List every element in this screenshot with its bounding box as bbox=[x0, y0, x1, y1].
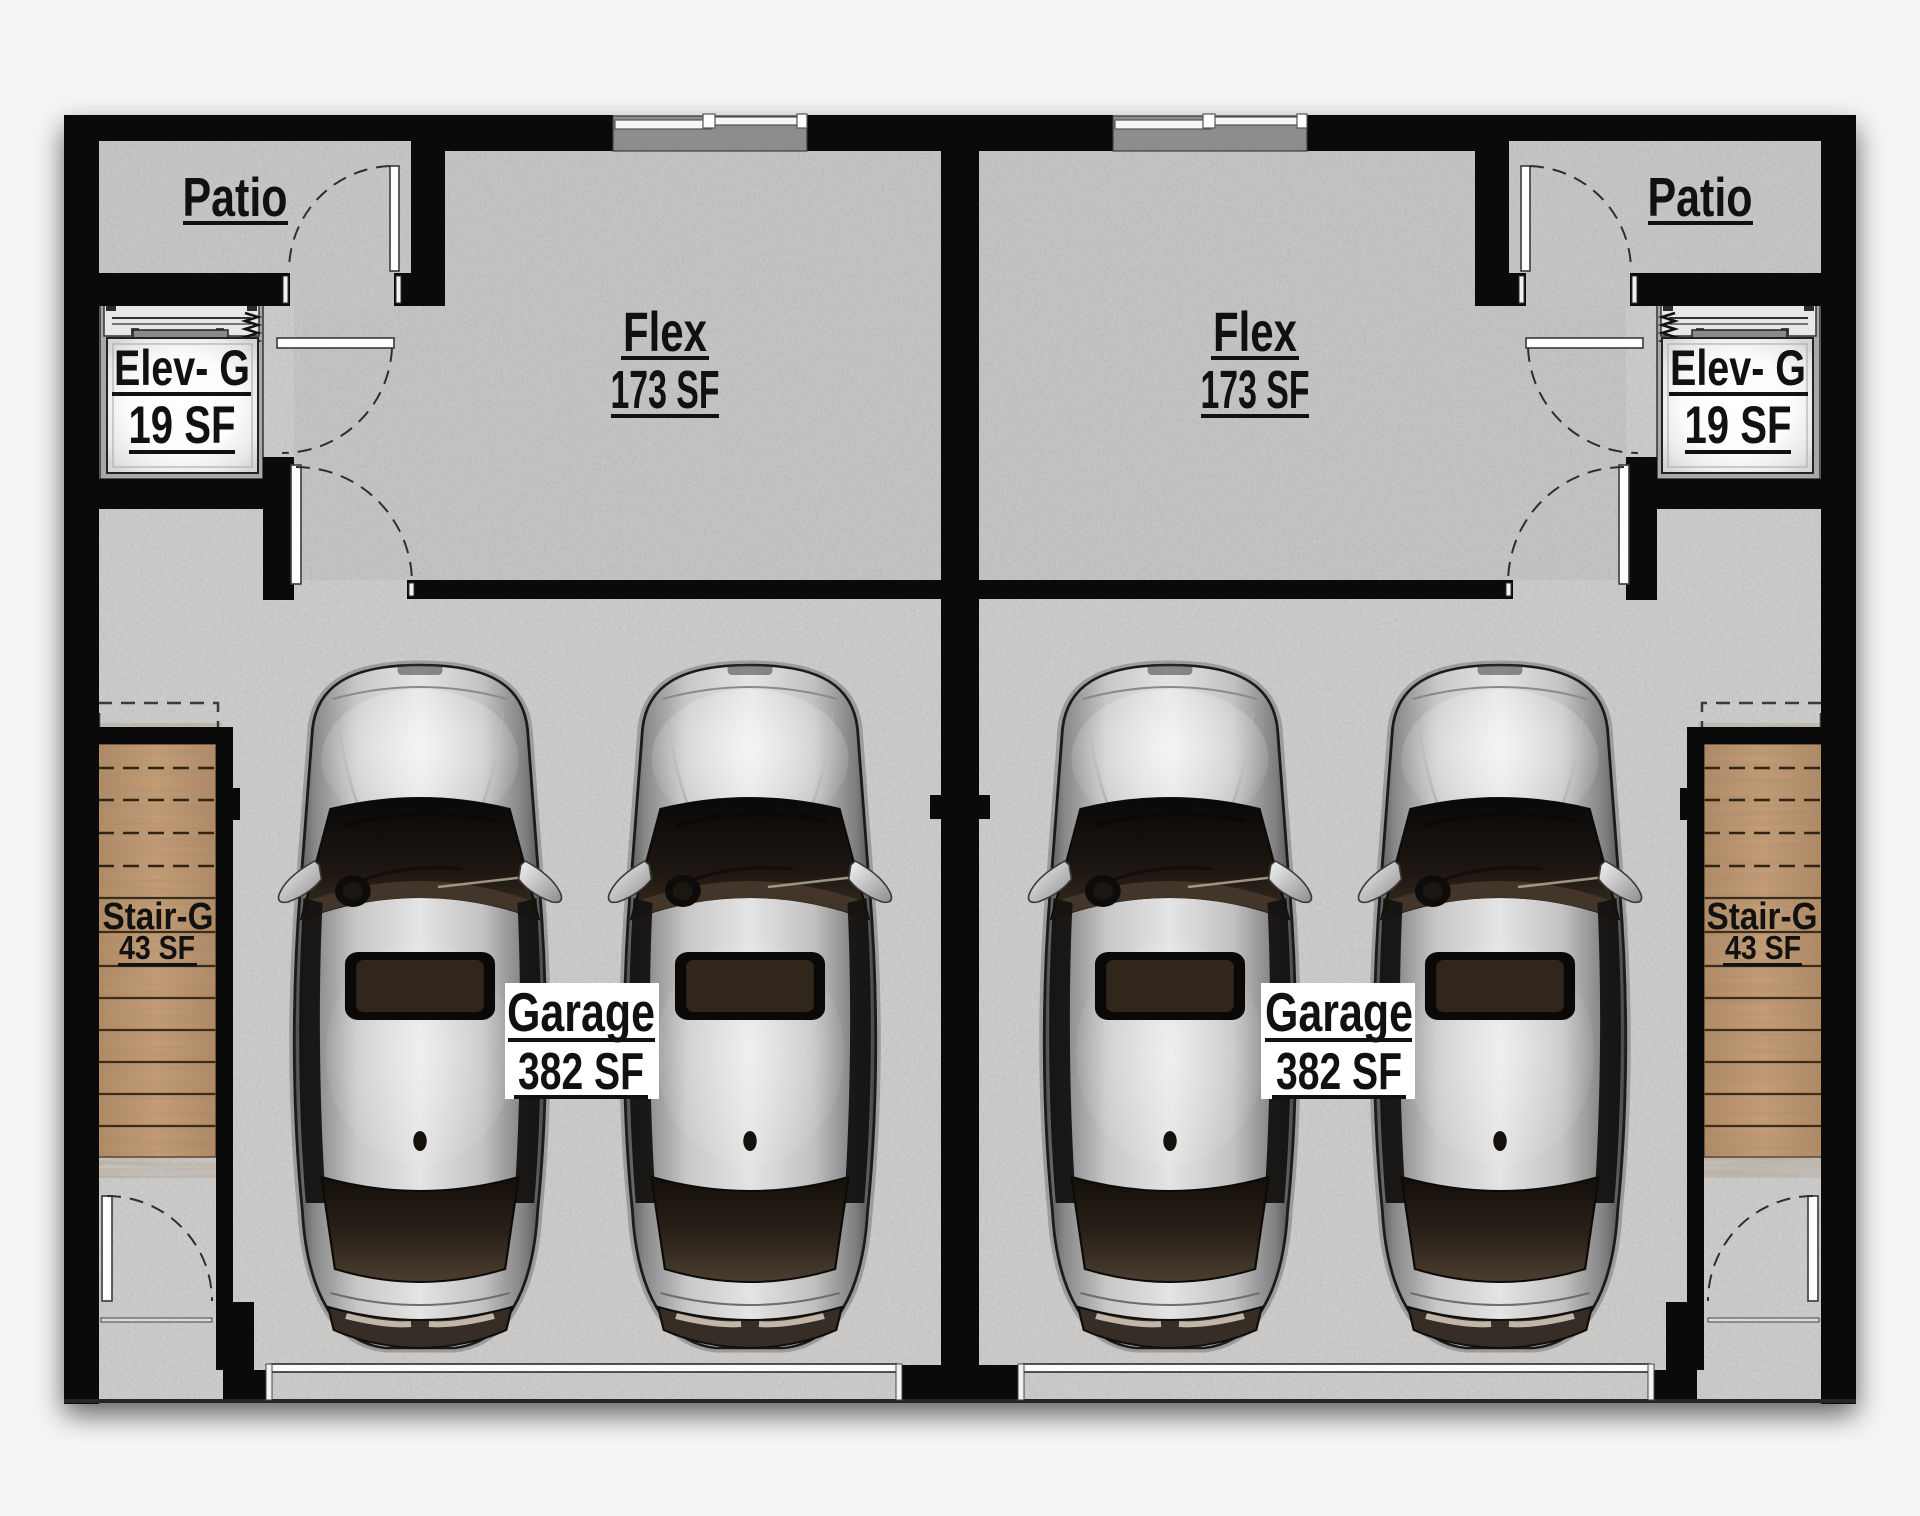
svg-text:43 SF: 43 SF bbox=[119, 929, 195, 966]
svg-text:Flex: Flex bbox=[1213, 300, 1297, 363]
svg-text:Elev- G: Elev- G bbox=[1670, 340, 1806, 396]
svg-text:173 SF: 173 SF bbox=[611, 360, 720, 420]
svg-text:19 SF: 19 SF bbox=[129, 396, 236, 455]
svg-text:Patio: Patio bbox=[183, 166, 288, 228]
svg-text:382 SF: 382 SF bbox=[1276, 1043, 1402, 1101]
svg-text:382 SF: 382 SF bbox=[518, 1043, 644, 1101]
svg-text:Garage: Garage bbox=[507, 981, 655, 1043]
svg-text:Elev- G: Elev- G bbox=[114, 340, 250, 396]
svg-text:Patio: Patio bbox=[1648, 166, 1753, 228]
svg-text:Garage: Garage bbox=[1265, 981, 1413, 1043]
svg-text:19 SF: 19 SF bbox=[1685, 396, 1792, 455]
svg-text:Flex: Flex bbox=[623, 300, 707, 363]
svg-text:43 SF: 43 SF bbox=[1725, 929, 1801, 966]
svg-text:173 SF: 173 SF bbox=[1201, 360, 1310, 420]
